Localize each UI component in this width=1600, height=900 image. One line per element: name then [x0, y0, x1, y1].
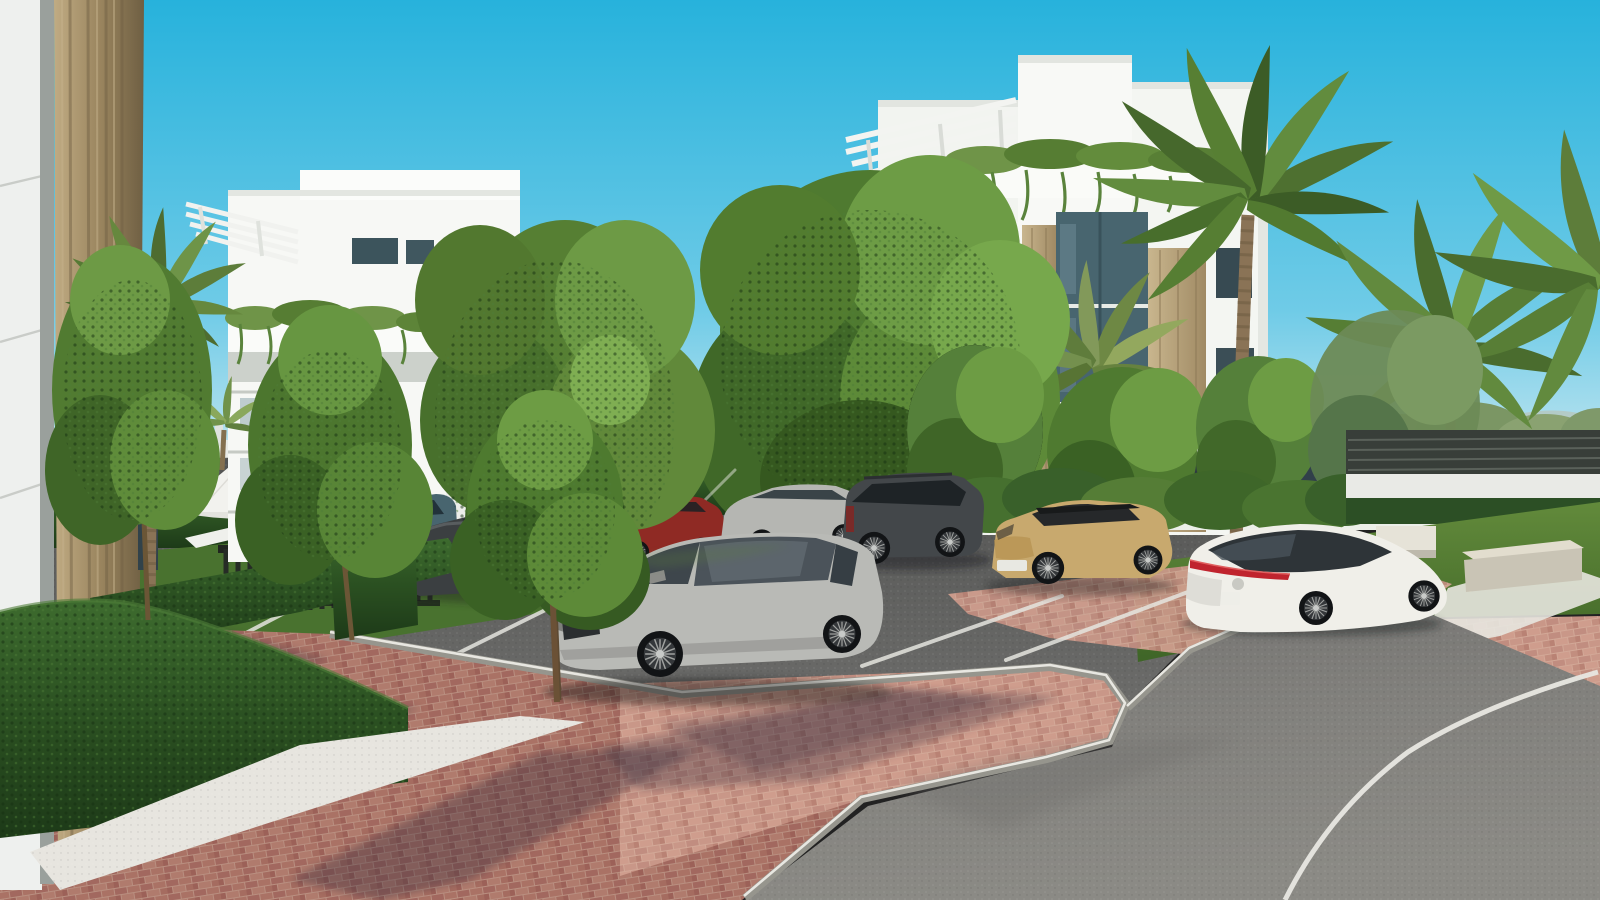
render-viewport: [0, 0, 1600, 900]
